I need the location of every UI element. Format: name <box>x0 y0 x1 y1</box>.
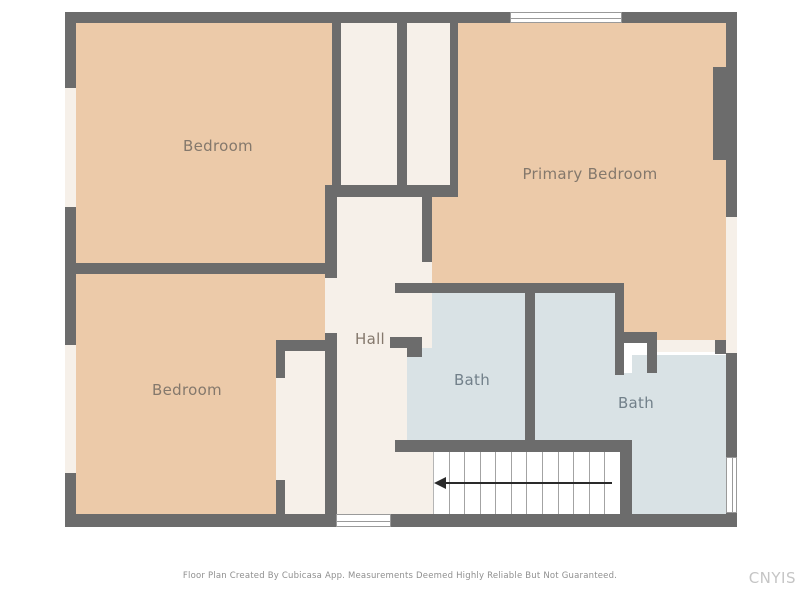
window-opening <box>726 217 737 353</box>
door-opening-bath-right <box>657 340 715 352</box>
stairs-direction-arrow <box>445 482 612 484</box>
floor-closet-top-b <box>407 23 450 185</box>
window-icon <box>510 12 622 23</box>
floor-primary-bedroom <box>458 23 726 293</box>
left-arrow-icon <box>434 477 446 489</box>
floor-closet-top-a <box>341 23 397 185</box>
room-label-bedroom-top-left: Bedroom <box>183 137 253 155</box>
wall <box>397 12 407 197</box>
wall <box>407 345 422 357</box>
window-icon <box>336 514 391 527</box>
floor-bath-right <box>535 293 617 440</box>
window-opening <box>65 345 76 473</box>
floor-bath-left <box>432 293 525 440</box>
floor-primary-bedroom <box>432 197 458 293</box>
window-opening <box>65 88 76 207</box>
wall <box>65 263 337 274</box>
disclaimer-text: Floor Plan Created By Cubicasa App. Meas… <box>0 571 800 581</box>
wall <box>450 12 458 197</box>
wall <box>325 185 458 197</box>
wall <box>422 197 432 262</box>
wall <box>647 343 657 373</box>
watermark: CNYIS <box>749 569 796 587</box>
wall <box>715 340 726 354</box>
room-label-hall: Hall <box>355 330 385 348</box>
floor-plan: Bedroom Bedroom Primary Bedroom Hall Bat… <box>0 0 800 600</box>
wall <box>325 197 337 263</box>
room-label-bath-left: Bath <box>454 371 490 389</box>
wall <box>325 333 337 514</box>
room-label-primary-bedroom: Primary Bedroom <box>522 165 657 183</box>
door-opening-bedroom-bottom-left <box>325 278 337 333</box>
wall <box>620 440 632 514</box>
wall <box>525 283 535 440</box>
wall <box>395 283 623 293</box>
wall <box>276 480 285 514</box>
wall <box>395 440 632 452</box>
wall <box>276 340 285 378</box>
wall <box>65 514 737 527</box>
wall <box>615 332 657 343</box>
room-label-bath-right: Bath <box>618 394 654 412</box>
floor-bath-left <box>407 348 432 440</box>
room-label-bedroom-bottom-left: Bedroom <box>152 381 222 399</box>
window-icon <box>726 457 737 513</box>
wall <box>615 283 624 375</box>
wall <box>332 12 341 197</box>
floor-bath-right <box>632 355 726 514</box>
wall <box>325 263 337 278</box>
wall <box>713 67 726 160</box>
